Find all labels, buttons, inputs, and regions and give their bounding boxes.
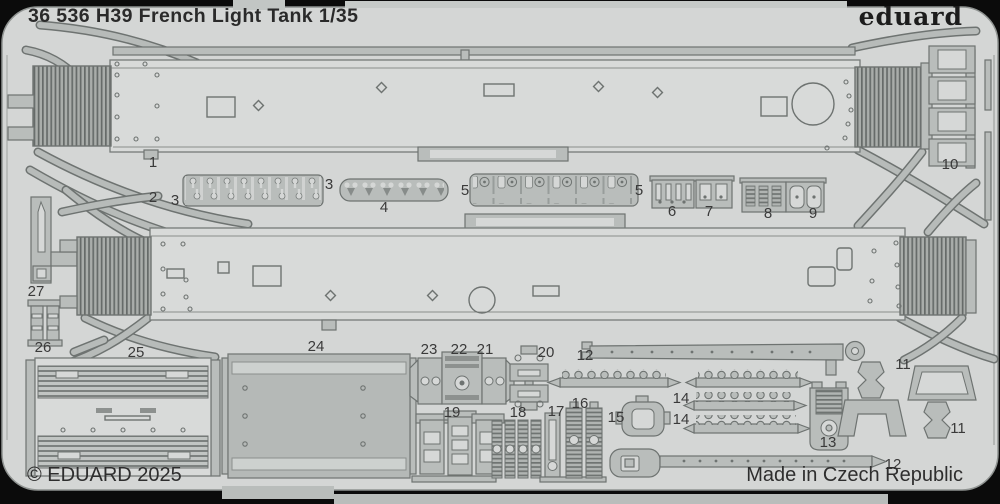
eduard-fret-image: 1233455678910272625242322212012191817161… bbox=[0, 0, 1000, 504]
part-label-11: 11 bbox=[950, 420, 966, 437]
part-22-wheel-face bbox=[442, 352, 482, 404]
part-label-25: 25 bbox=[128, 344, 145, 361]
part-21-bracket bbox=[482, 358, 514, 404]
sprue-tab bbox=[334, 494, 888, 504]
part-label-24: 24 bbox=[308, 338, 325, 355]
part-4-track-strip bbox=[340, 179, 448, 201]
part-label-7: 7 bbox=[705, 203, 713, 220]
sprue-tab bbox=[345, 1, 847, 8]
part-label-26: 26 bbox=[35, 339, 52, 356]
etched-hinge-band bbox=[77, 237, 151, 315]
part-label-5: 5 bbox=[461, 182, 469, 199]
part-5-track-strip bbox=[470, 174, 638, 206]
part-label-15: 15 bbox=[608, 409, 625, 426]
eduard-logo: eduard bbox=[859, 2, 963, 31]
part-2-hull-plate bbox=[60, 214, 976, 330]
part-17-strip bbox=[545, 413, 560, 477]
copyright-text: © EDUARD 2025 bbox=[27, 464, 182, 487]
part-label-3: 3 bbox=[171, 192, 179, 209]
part-3-track-strip bbox=[183, 175, 323, 206]
part-1-hull-plate bbox=[8, 47, 932, 161]
part-label-21: 21 bbox=[477, 341, 494, 358]
part-label-9: 9 bbox=[809, 205, 817, 222]
part-label-16: 16 bbox=[572, 395, 589, 412]
part-label-14: 14 bbox=[673, 390, 690, 407]
part-label-4: 4 bbox=[380, 199, 388, 216]
etched-hinge-band bbox=[855, 67, 921, 147]
part-label-2: 2 bbox=[149, 189, 157, 206]
part-19-canisters bbox=[412, 411, 504, 482]
etched-hinge-band bbox=[33, 66, 111, 146]
part-label-18: 18 bbox=[510, 404, 527, 421]
part-label-22: 22 bbox=[451, 341, 468, 358]
part-label-3: 3 bbox=[325, 176, 333, 193]
part-7-bracket bbox=[696, 180, 732, 208]
part-label-20: 20 bbox=[538, 344, 555, 361]
part-label-27: 27 bbox=[28, 283, 45, 300]
etched-hinge-band bbox=[900, 237, 966, 315]
part-label-6: 6 bbox=[668, 203, 676, 220]
part-label-11: 11 bbox=[895, 356, 911, 373]
part-label-10: 10 bbox=[942, 156, 959, 173]
edge-strip bbox=[985, 60, 991, 110]
part-23-bracket bbox=[410, 358, 442, 404]
part-25-louvre-plate bbox=[26, 358, 220, 476]
part-label-17: 17 bbox=[548, 403, 565, 420]
part-label-14: 14 bbox=[673, 411, 690, 428]
part-label-19: 19 bbox=[444, 404, 461, 421]
part-label-5: 5 bbox=[635, 182, 643, 199]
part-9-bracket bbox=[786, 182, 824, 212]
sheet-title: 36 536 H39 French Light Tank 1/35 bbox=[28, 5, 358, 28]
part-label-23: 23 bbox=[421, 341, 438, 358]
part-24-plate bbox=[222, 354, 416, 478]
sprue-tab bbox=[222, 486, 334, 499]
part-label-8: 8 bbox=[764, 205, 772, 222]
origin-text: Made in Czech Republic bbox=[746, 464, 963, 487]
part-label-1: 1 bbox=[149, 154, 157, 171]
part-label-12: 12 bbox=[577, 347, 594, 364]
part-label-13: 13 bbox=[820, 434, 837, 451]
edge-strip bbox=[985, 132, 991, 220]
photo-etch-fret: 1233455678910272625242322212012191817161… bbox=[0, 0, 1000, 504]
